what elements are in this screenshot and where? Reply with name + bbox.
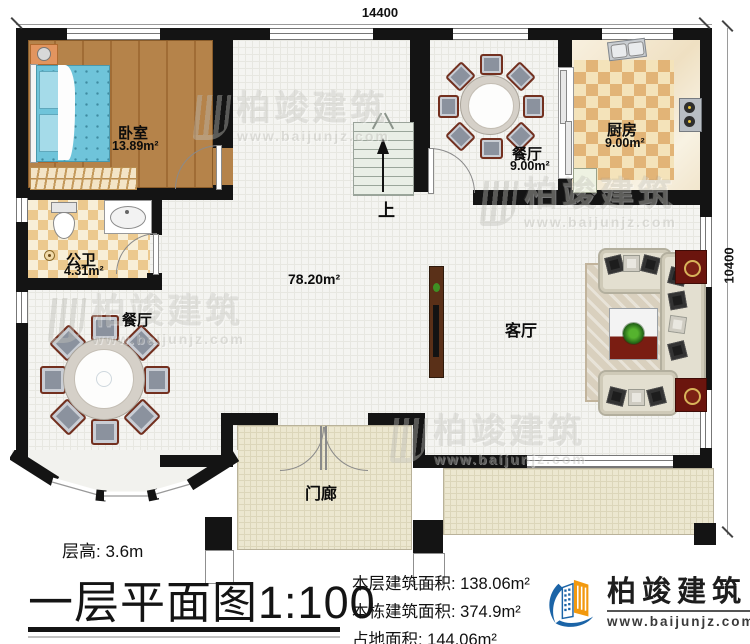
bathroom-left-window [16,198,28,222]
toilet [50,202,76,238]
coffee-table [609,308,658,360]
dining-chair [480,138,503,159]
porch-column-right [413,520,443,553]
area-stats: 本层建筑面积: 138.06m² 本栋建筑面积: 374.9m² 占地面积: 1… [352,570,530,644]
bathroom-area: 4.31m² [64,264,104,278]
stat-land-area: 占地面积: 144.06m² [352,626,530,644]
fridge [573,168,597,193]
floor-drain [44,250,55,261]
plant [623,323,644,344]
dining-chair [523,95,544,118]
stove [679,98,702,132]
top-dimension-line [16,24,712,25]
porch-right-wall [413,413,425,468]
nightstand-top [30,44,58,65]
brand-name: 柏竣建筑 [607,577,750,609]
floor-height-label: 层高: 3.6m [62,537,143,562]
living-bottom-window [527,455,673,468]
dining-top-door-leaf [428,148,434,194]
dining-left-table [63,338,145,420]
terrace-floor [443,468,714,535]
bedroom-top-window [67,28,160,40]
sink-counter [104,200,152,234]
living-bottom-wall-right [673,455,712,468]
stairs-up-label: 上 [378,196,395,221]
living-label: 客厅 [505,317,537,341]
brand-url: www.baijunjz.com [607,610,750,629]
porch-door-left-leaf [320,426,322,470]
hall-area: 78.20m² [288,271,340,287]
porch-column-left [205,517,232,550]
bed-pillow-1 [39,71,60,109]
side-table-bottom [675,378,707,412]
cabinet-plant [433,283,440,292]
side-table-top [675,250,707,284]
kitchen-left-wall-top [558,40,572,67]
porch-door-right-leaf [325,426,327,470]
left-wall [16,28,28,460]
sofa-bottom [598,370,678,416]
title-underline-thick [28,627,340,632]
living-bottom-wall-left [425,455,527,468]
wardrobe [30,167,137,190]
bathroom-bottom-wall [16,278,162,290]
plan-title-text: 一层平面图 [28,577,258,628]
stat-floor-area: 本层建筑面积: 138.06m² [352,570,530,594]
kitchen-area: 9.00m² [605,136,645,150]
dining-top-window [453,28,528,40]
bed-pillow-2 [39,114,60,152]
brand-logo-icon [545,576,599,630]
plan-title: 一层平面图1:100 [28,566,376,631]
dining-chair [438,95,459,118]
bathroom-door-leaf [153,234,159,275]
tv-cabinet [429,266,444,378]
dining-top-area: 9.00m² [510,159,550,173]
dining-chair [480,54,503,75]
brand-logo: 柏竣建筑 www.baijunjz.com [545,576,750,630]
terrace-column [694,523,716,545]
bedroom-area: 13.89m² [112,139,159,153]
bed [30,64,108,161]
stair-arrow-head [377,138,389,154]
kitchen-left-wall-bottom [558,177,572,205]
bedroom-door-leaf [216,145,222,190]
hall-top-window [270,28,373,40]
stat-building-area: 本栋建筑面积: 374.9m² [352,598,530,622]
stair-arrow-line [382,152,384,192]
dining-left-window [16,292,28,323]
title-underline-thin [28,636,340,638]
dining-left-label: 餐厅 [122,309,152,330]
floor-plan-canvas: 柏竣建筑www.baijunjz.com 柏竣建筑www.baijunjz.co… [0,0,750,644]
tv [433,305,439,357]
top-dimension-label: 14400 [345,5,415,20]
porch-label: 门廊 [305,480,337,504]
kitchen-sliding-door [558,67,574,179]
bedroom-right-wall [213,40,233,148]
dining-top-table [460,75,520,135]
dining-chair [144,366,170,394]
right-dimension-label: 10400 [722,235,737,297]
bed-sheet [58,65,75,160]
step-wall [221,413,233,467]
dining-chair [91,419,119,445]
